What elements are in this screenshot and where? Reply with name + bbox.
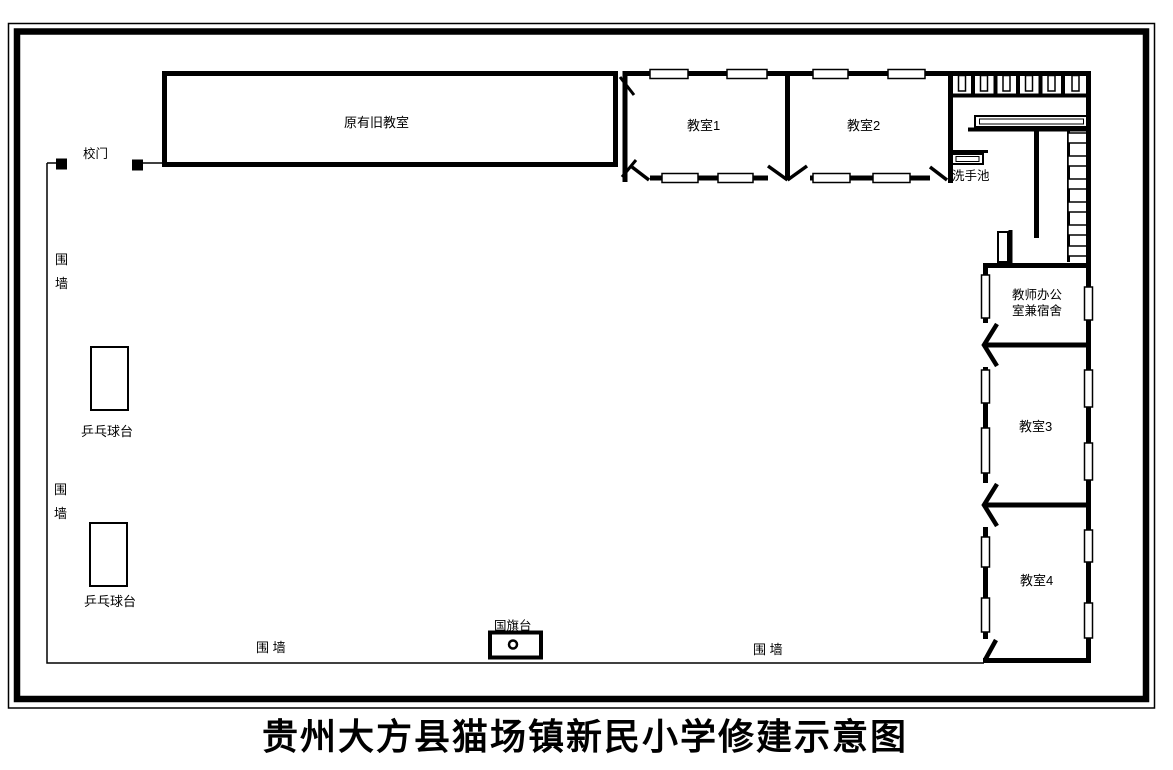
floor-plan-drawing [0,0,1173,770]
wall-label-bottom-left: 围 墙 [256,637,286,656]
school-gate-label: 校门 [83,143,108,162]
fence [47,163,984,663]
ping-pong-table [90,347,128,586]
wall-label-bottom-right: 围 墙 [753,639,783,658]
page-title: 贵州大方县猫场镇新民小学修建示意图 [0,708,1170,760]
wall-label-left-lower: 围墙 [54,478,70,526]
stall-row [951,74,1091,96]
classroom3-label: 教室3 [1019,416,1052,435]
old-classroom-label: 原有旧教室 [344,112,409,131]
counter-bench [968,116,1089,130]
office-door-leaf [998,230,1011,263]
stairs [1037,131,1088,262]
wash-basin-label: 洗手池 [952,165,990,184]
classroom2-label: 教室2 [847,115,880,134]
wash-basin-shape [951,152,988,165]
school-floor-plan: 校门 原有旧教室 教室1 教室2 洗手池 教师办公 室兼宿舍 教室3 教室4 围… [0,0,1173,770]
ping-pong-label-2: 乒乓球台 [84,591,136,610]
stair-step [1068,133,1087,256]
teacher-office-label: 教师办公 室兼宿舍 [1006,287,1068,319]
ping-pong-label-1: 乒乓球台 [81,421,133,440]
wall-label-left-upper: 围墙 [55,248,71,296]
classroom1-label: 教室1 [687,115,720,134]
classroom4-label: 教室4 [1020,570,1053,589]
flag-platform-label: 国旗台 [494,615,532,634]
flag-platform-shape [490,633,541,658]
